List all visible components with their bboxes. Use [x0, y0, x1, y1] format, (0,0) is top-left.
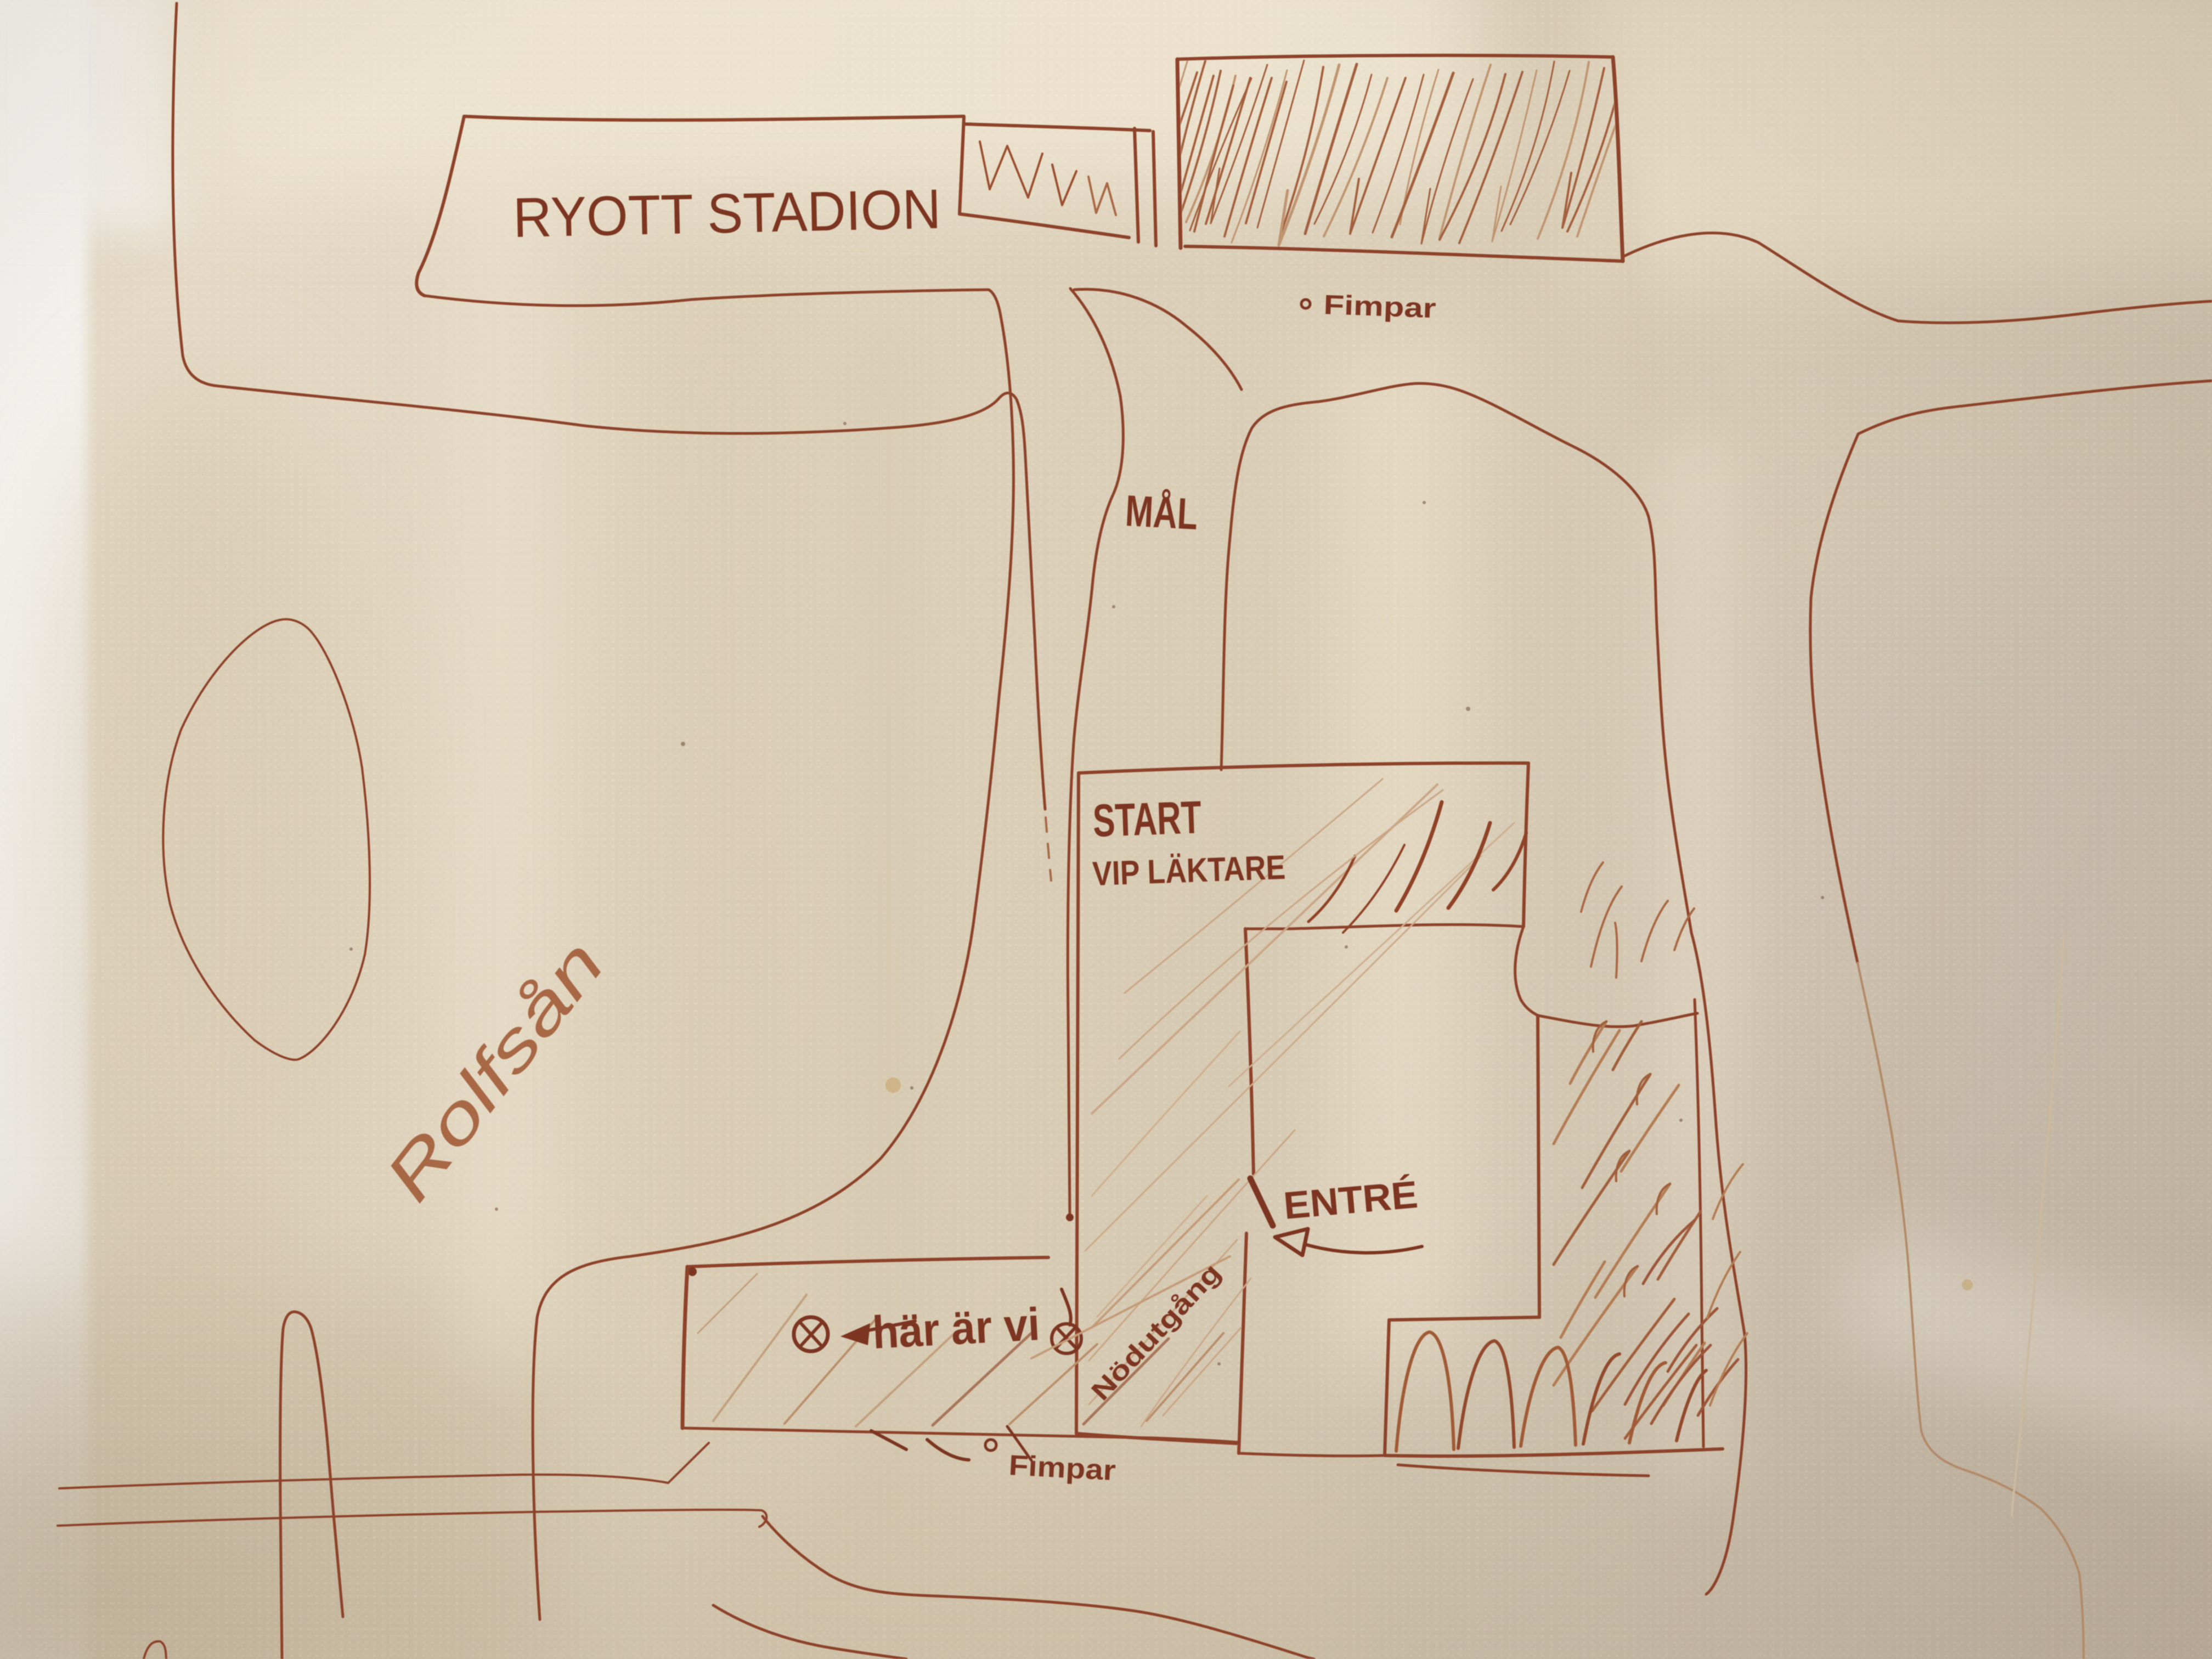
svg-text:Rolfsån: Rolfsån — [370, 927, 618, 1215]
svg-text:VIP LÄKTARE: VIP LÄKTARE — [1092, 849, 1286, 893]
svg-text:ENTRÉ: ENTRÉ — [1282, 1173, 1420, 1227]
svg-text:START: START — [1092, 791, 1202, 847]
svg-text:Fimpar: Fimpar — [1323, 289, 1437, 324]
svg-text:MÅL: MÅL — [1124, 486, 1199, 539]
svg-text:här är vi: här är vi — [871, 1298, 1041, 1358]
svg-text:Nödutgång: Nödutgång — [1086, 1258, 1227, 1406]
svg-text:Fimpar: Fimpar — [1008, 1449, 1116, 1487]
svg-text:RYOTT STADION: RYOTT STADION — [512, 178, 941, 249]
